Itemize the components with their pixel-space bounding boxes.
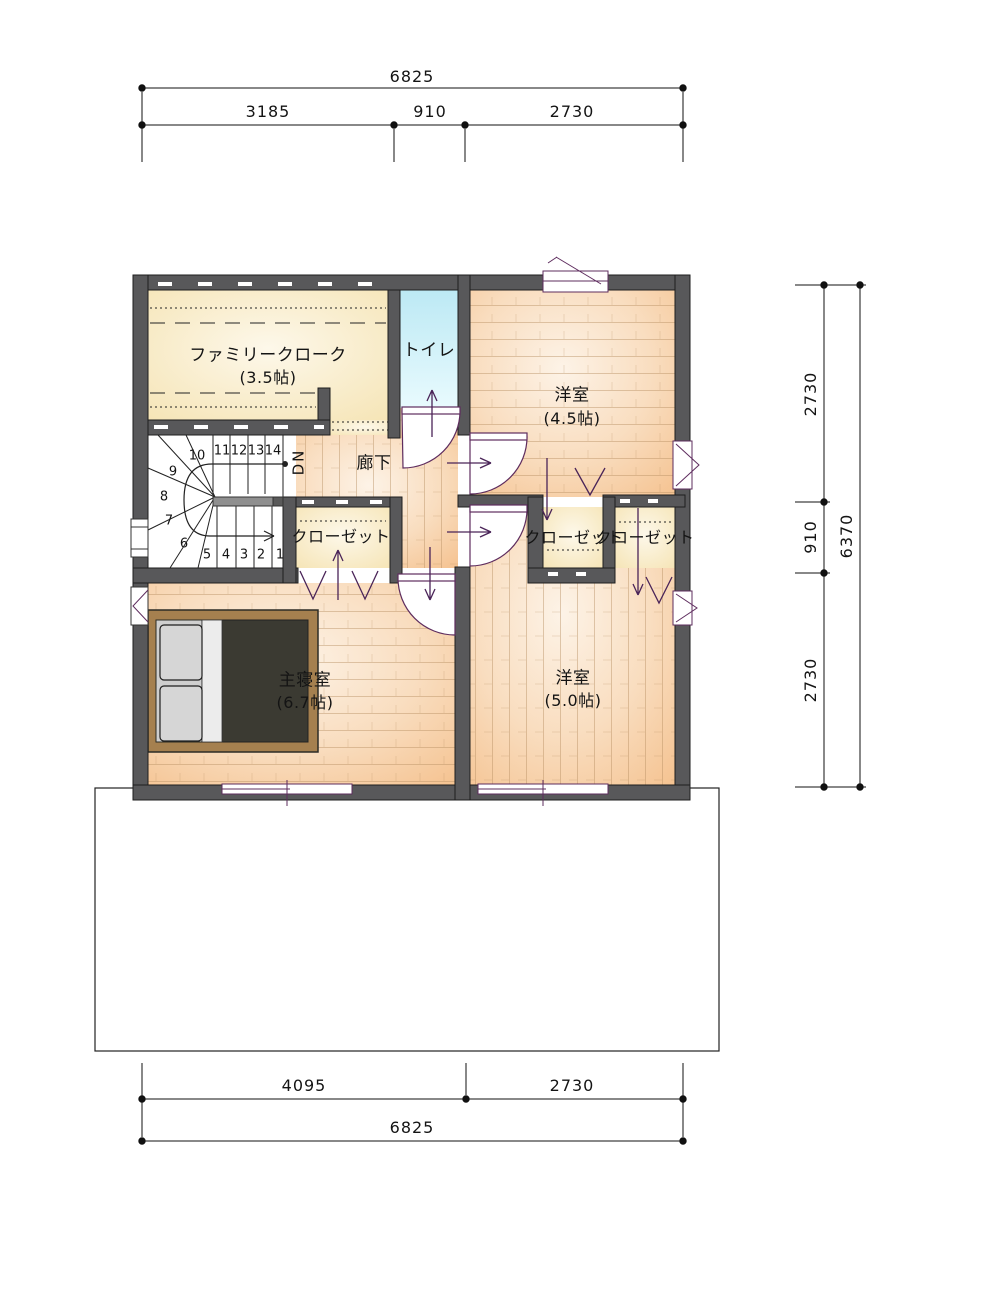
stair-step-11: 11 (214, 445, 231, 458)
stair-step-3: 3 (240, 549, 248, 562)
floorplan-drawing (0, 0, 1003, 1289)
label-western-room-50: 洋室 (556, 671, 591, 688)
stair-step-13: 13 (248, 445, 265, 458)
label-closet-west: クローゼット (291, 529, 390, 545)
stair-step-10: 10 (189, 450, 206, 463)
window-frame (131, 519, 148, 557)
dim-right-seg-3: 2730 (803, 658, 819, 703)
dim-dot (139, 1138, 145, 1144)
label-master-bedroom: 主寝室 (279, 673, 332, 690)
dim-dot (821, 570, 827, 576)
bed-sheet-fold (202, 620, 222, 742)
label-stairs-dn: DN (292, 449, 307, 476)
label-toilet: トイレ (403, 343, 456, 360)
wall-closets-south (528, 568, 615, 583)
floorplan-canvas: 6825 3185 910 2730 4095 2730 6825 2730 9… (0, 0, 1003, 1289)
stair-step-1: 1 (276, 549, 284, 562)
dim-dot (463, 1096, 469, 1102)
wall-bedroom-room50 (455, 567, 470, 800)
label-western-room-50-size: (5.0帖) (545, 693, 602, 709)
dim-right-seg-1: 2730 (803, 372, 819, 417)
stair-step-6: 6 (180, 538, 188, 551)
label-closet-east: クローゼット (595, 530, 694, 546)
dim-bottom-total: 6825 (390, 1120, 435, 1136)
wall-bedroom-north-west (133, 568, 298, 583)
lower-roof-outline (95, 788, 719, 1051)
dim-dot (680, 1096, 686, 1102)
stair-step-2: 2 (257, 549, 265, 562)
window-frame (673, 591, 692, 625)
stair-step-9: 9 (169, 466, 177, 479)
stair-step-7: 7 (165, 515, 173, 528)
label-family-cloak: ファミリークローク (189, 348, 347, 365)
window-left-bedroom (131, 587, 148, 625)
stair-step-14: 14 (265, 445, 282, 458)
dim-top-seg-3: 2730 (550, 104, 595, 120)
dim-dot (857, 282, 863, 288)
dim-top-total: 6825 (390, 69, 435, 85)
window-left-stairs (131, 519, 148, 557)
bed-pillow-1 (160, 625, 202, 680)
dim-dot (680, 122, 686, 128)
window-frame (673, 441, 692, 489)
wall-cloak-stub (318, 388, 330, 420)
label-master-bedroom-size: (6.7帖) (277, 695, 334, 711)
dim-dot (139, 122, 145, 128)
dim-dot (139, 85, 145, 91)
dim-right-seg-2: 910 (803, 520, 819, 554)
dim-dot (391, 122, 397, 128)
window-top-room45 (543, 257, 608, 292)
dim-dot (462, 122, 468, 128)
bed-pillow-2 (160, 686, 202, 741)
dim-top-seg-2: 910 (413, 104, 447, 120)
dim-dot (139, 1096, 145, 1102)
wall-cloak-toilet (388, 290, 400, 438)
label-corridor: 廊下 (357, 456, 392, 473)
dim-bottom-seg-2: 2730 (550, 1078, 595, 1094)
stair-step-12: 12 (231, 445, 248, 458)
door-room45-leaf (470, 433, 527, 440)
dim-dot (821, 282, 827, 288)
door-room50-leaf (470, 505, 527, 512)
walk-line-start-dot (282, 461, 288, 467)
stair-step-4: 4 (222, 549, 230, 562)
wall-closet-west-east (390, 497, 402, 583)
stair-step-8: 8 (160, 491, 168, 504)
stairs-handrail-post (273, 497, 283, 506)
dim-dot (680, 85, 686, 91)
dim-bottom-seg-1: 4095 (282, 1078, 327, 1094)
stair-step-5: 5 (203, 549, 211, 562)
dim-right-total: 6370 (839, 514, 855, 559)
window-right-room45 (673, 441, 699, 489)
dim-dot (821, 499, 827, 505)
door-toilet-leaf (402, 407, 460, 414)
dim-dot (680, 1138, 686, 1144)
dim-dot (857, 784, 863, 790)
label-western-room-45: 洋室 (555, 388, 590, 405)
door-master-leaf (398, 574, 455, 581)
dim-dot (821, 784, 827, 790)
label-western-room-45-size: (4.5帖) (544, 411, 601, 427)
label-family-cloak-size: (3.5帖) (240, 370, 297, 386)
dim-top-seg-1: 3185 (246, 104, 291, 120)
window-right-room50 (673, 591, 697, 625)
